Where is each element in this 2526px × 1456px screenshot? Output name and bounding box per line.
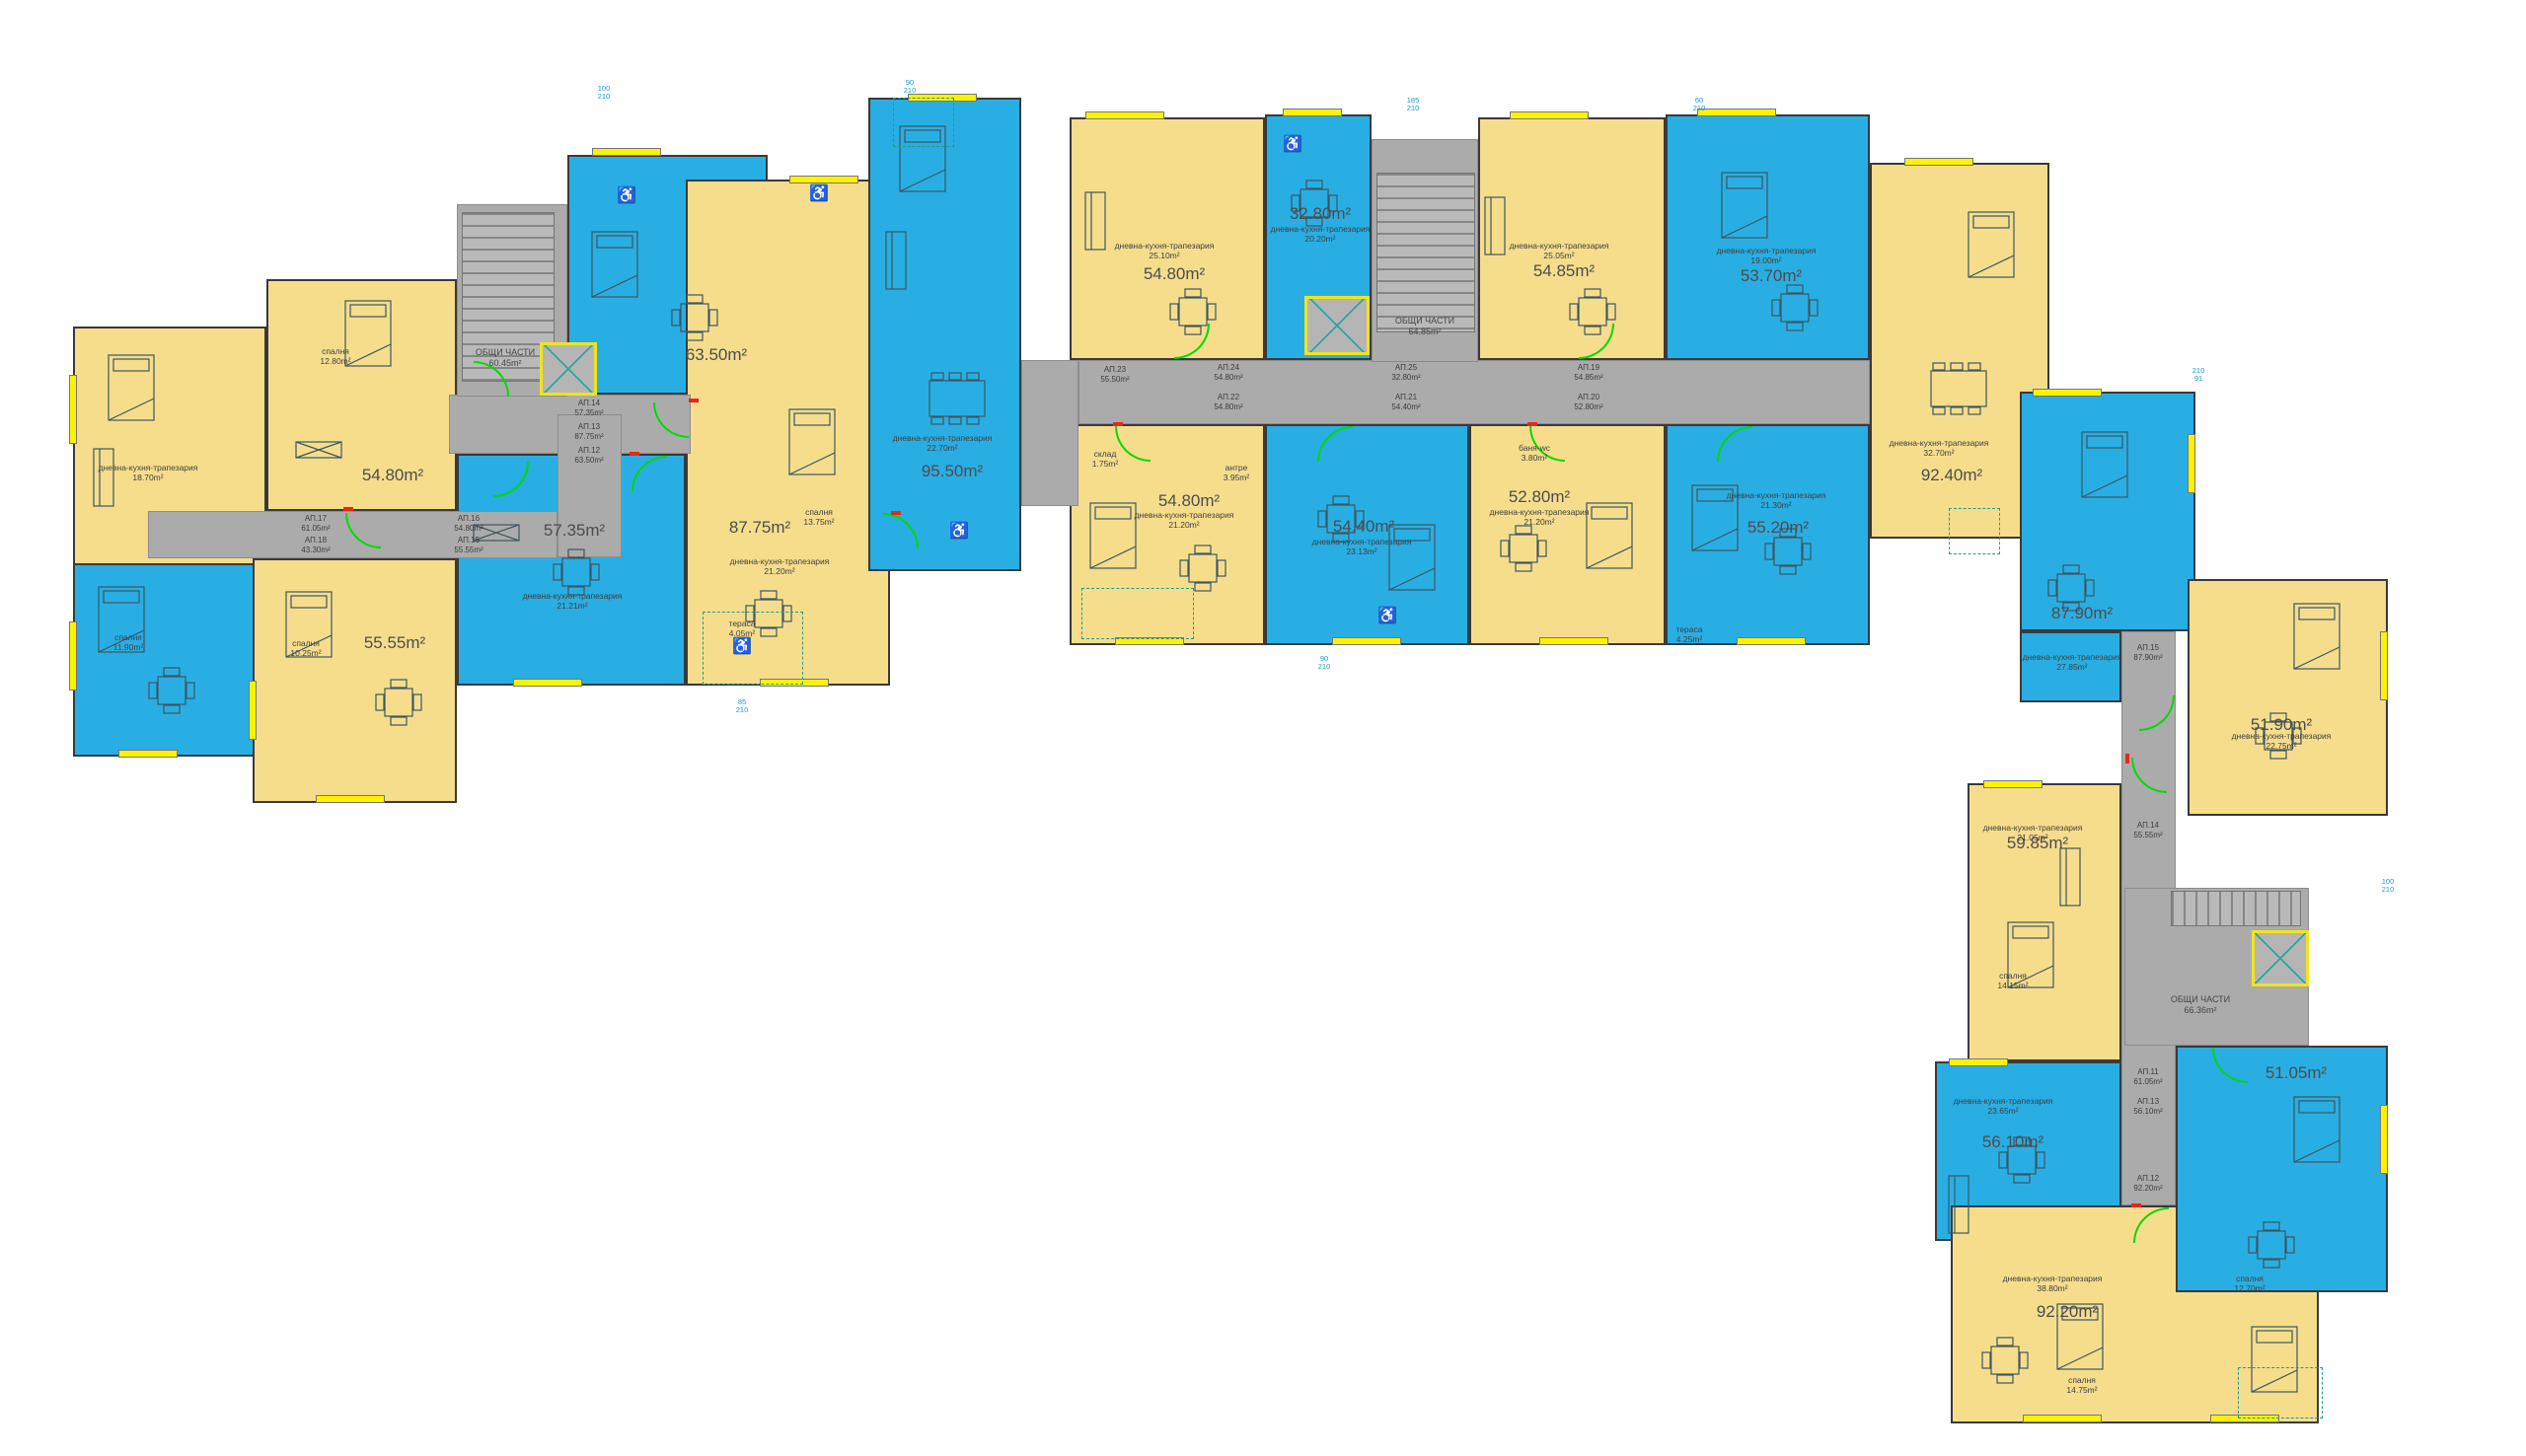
room-label: спалня 10.25m² bbox=[290, 639, 321, 658]
dimension-label: 85 210 bbox=[736, 698, 749, 714]
window-marker bbox=[249, 681, 257, 740]
wheelchair-icon: ♿ bbox=[1377, 606, 1397, 625]
corridor bbox=[1078, 360, 1870, 424]
floor-plan: ♿ ♿ ♿ ♿ ♿ ♿ 54.80m² 55.55m² 63.50m² 57.3… bbox=[0, 0, 2526, 1456]
room-label: дневна-кухня-трапезария 25.05m² bbox=[1510, 242, 1609, 260]
room-label: склад 1.75m² bbox=[1092, 450, 1118, 469]
common-area-name: ОБЩИ ЧАСТИ bbox=[1395, 316, 1454, 326]
dimension-label: 90 210 bbox=[904, 79, 917, 95]
area-label: 95.50m² bbox=[922, 462, 983, 481]
window-marker bbox=[1510, 111, 1589, 119]
area-label: 54.80m² bbox=[1144, 264, 1205, 284]
room-label: баня-wc 3.80m² bbox=[1519, 444, 1550, 463]
door-jamb bbox=[891, 511, 901, 515]
window-marker bbox=[1904, 158, 1973, 166]
window-marker bbox=[69, 375, 77, 444]
stairs-icon bbox=[2171, 891, 2301, 926]
door-jamb bbox=[343, 507, 353, 511]
common-area-name: ОБЩИ ЧАСТИ bbox=[476, 347, 535, 357]
area-label: 54.80m² bbox=[1158, 491, 1220, 511]
room-label: дневна-кухня-трапезария 21.30m² bbox=[1727, 491, 1826, 510]
corridor-label: АП.11 61.05m² bbox=[2133, 1067, 2162, 1086]
common-area-label: ОБЩИ ЧАСТИ 60.45m² bbox=[476, 347, 535, 369]
dimension-label: 210 91 bbox=[2192, 367, 2205, 383]
window-marker bbox=[2033, 389, 2102, 397]
window-marker bbox=[2188, 434, 2195, 493]
window-marker bbox=[1697, 109, 1776, 116]
dimension-label: 185 210 bbox=[1407, 97, 1420, 112]
window-marker bbox=[1283, 109, 1342, 116]
corridor-label: АП.14 57.35m² bbox=[574, 399, 603, 417]
area-label: 92.40m² bbox=[1921, 466, 1982, 485]
area-label: 56.10m² bbox=[1982, 1132, 2043, 1152]
corridor-label: АП.24 54.80m² bbox=[1214, 363, 1242, 382]
room-label: дневна-кухня-трапезария 23.65m² bbox=[1954, 1097, 2053, 1116]
corridor-label: АП.13 87.75m² bbox=[574, 422, 603, 441]
corridor-label: АП.19 54.85m² bbox=[1574, 363, 1602, 382]
room-label: дневна-кухня-трапезария 23.13m² bbox=[1312, 538, 1412, 556]
room-label: дневна-кухня-трапезария 25.10m² bbox=[1115, 242, 1215, 260]
dimension-label: 90 210 bbox=[1318, 655, 1331, 671]
corridor-label: АП.14 55.55m² bbox=[2133, 821, 2162, 839]
room-label: тераса 4.25m² bbox=[1676, 625, 1703, 644]
terrace-outline bbox=[1949, 508, 2000, 554]
room-label: дневна-кухня-трапезария 21.21m² bbox=[523, 592, 623, 611]
window-marker bbox=[1949, 1058, 2008, 1066]
area-label: 54.80m² bbox=[362, 466, 423, 485]
window-marker bbox=[2023, 1415, 2102, 1422]
area-label: 55.20m² bbox=[1747, 518, 1809, 538]
stairs-icon bbox=[1376, 173, 1475, 332]
room-label: дневна-кухня-трапезария 20.20m² bbox=[1271, 225, 1371, 244]
door-jamb bbox=[689, 399, 699, 402]
corridor-label: АП.16 54.80m² bbox=[454, 514, 483, 533]
corridor-label: АП.17 61.05m² bbox=[301, 514, 330, 533]
room-label: дневна-кухня-трапезария 22.70m² bbox=[893, 434, 993, 453]
corridor-label: АП.25 32.80m² bbox=[1391, 363, 1420, 382]
terrace-outline bbox=[1081, 588, 1194, 639]
elevator-icon bbox=[1304, 296, 1370, 355]
elevator-icon bbox=[540, 342, 597, 396]
wheelchair-icon: ♿ bbox=[1283, 134, 1302, 154]
apartment-unit bbox=[686, 180, 890, 686]
wheelchair-icon: ♿ bbox=[617, 185, 636, 205]
wheelchair-icon: ♿ bbox=[949, 521, 969, 541]
room-label: дневна-кухня-трапезария 38.80m² bbox=[2003, 1274, 2103, 1293]
apartment-unit bbox=[2188, 579, 2388, 816]
window-marker bbox=[69, 621, 77, 691]
door-jamb bbox=[1527, 422, 1537, 426]
room-label: дневна-кухня-трапезария 27.85m² bbox=[2023, 653, 2122, 672]
room-label: дневна-кухня-трапезария 19.00m² bbox=[1717, 247, 1817, 265]
apartment-unit bbox=[1469, 424, 1666, 645]
door-jamb bbox=[2125, 754, 2129, 764]
window-marker bbox=[1737, 637, 1806, 645]
room-label: дневна-кухня-трапезария 21.20m² bbox=[730, 557, 830, 576]
apartment-unit bbox=[868, 98, 1021, 571]
apartment-unit bbox=[1666, 114, 1870, 360]
dimension-label: 60 210 bbox=[1693, 97, 1706, 112]
room-label: спалня 12.70m² bbox=[2234, 1274, 2265, 1293]
apartment-unit bbox=[253, 558, 457, 803]
terrace-outline bbox=[2238, 1367, 2323, 1419]
common-area-label: ОБЩИ ЧАСТИ 64.85m² bbox=[1395, 316, 1454, 337]
room-label: спалня 13.75m² bbox=[803, 508, 834, 527]
room-label: тераса 4.05m² bbox=[729, 619, 756, 638]
room-label: дневна-кухня-трапезария 21.05m² bbox=[1983, 824, 2083, 842]
room-label: дневна-кухня-трапезария 21.20m² bbox=[1490, 508, 1590, 527]
window-marker bbox=[1983, 780, 2043, 788]
corridor bbox=[1021, 360, 1078, 506]
corridor-label: АП.15 55.55m² bbox=[454, 536, 483, 554]
apartment-unit bbox=[2020, 392, 2195, 631]
terrace-outline bbox=[893, 98, 954, 147]
window-marker bbox=[513, 679, 582, 687]
apartment-unit bbox=[1478, 117, 1666, 360]
common-area-size: 60.45m² bbox=[488, 358, 521, 368]
dimension-label: 100 210 bbox=[598, 85, 611, 101]
room-label: спалня 14.75m² bbox=[2066, 1376, 2097, 1395]
area-label: 32.80m² bbox=[1290, 204, 1351, 224]
apartment-unit bbox=[1070, 117, 1265, 360]
window-marker bbox=[2380, 631, 2388, 700]
corridor-label: АП.15 87.90m² bbox=[2133, 643, 2162, 662]
room-label: дневна-кухня-трапезария 18.70m² bbox=[99, 464, 198, 482]
room-label: антре 3.95m² bbox=[1224, 464, 1249, 482]
window-marker bbox=[1332, 637, 1401, 645]
door-jamb bbox=[630, 452, 639, 456]
door-jamb bbox=[2131, 1203, 2141, 1207]
room-label: дневна-кухня-трапезария 32.70m² bbox=[1890, 439, 1989, 458]
common-area-size: 66.36m² bbox=[2184, 1005, 2216, 1015]
area-label: 87.75m² bbox=[729, 518, 790, 538]
corridor-label: АП.23 55.50m² bbox=[1100, 365, 1129, 384]
area-label: 54.85m² bbox=[1533, 261, 1595, 281]
common-area-label: ОБЩИ ЧАСТИ 66.36m² bbox=[2171, 994, 2230, 1016]
corridor-label: АП.21 54.40m² bbox=[1391, 393, 1420, 411]
elevator-icon bbox=[2252, 930, 2309, 986]
window-marker bbox=[316, 795, 385, 803]
area-label: 51.05m² bbox=[2266, 1063, 2327, 1083]
wheelchair-icon: ♿ bbox=[732, 636, 752, 656]
corridor-label: АП.20 52.80m² bbox=[1574, 393, 1602, 411]
corridor-label: АП.22 54.80m² bbox=[1214, 393, 1242, 411]
room-label: дневна-кухня-трапезария 22.75m² bbox=[2232, 732, 2332, 751]
dimension-label: 100 210 bbox=[2382, 878, 2395, 894]
window-marker bbox=[1539, 637, 1608, 645]
door-jamb bbox=[1113, 422, 1123, 426]
area-label: 63.50m² bbox=[686, 345, 747, 365]
window-marker bbox=[592, 148, 661, 156]
common-area-name: ОБЩИ ЧАСТИ bbox=[2171, 994, 2230, 1004]
corridor-label: АП.13 56.10m² bbox=[2133, 1097, 2162, 1116]
area-label: 54.40m² bbox=[1333, 517, 1394, 537]
room-label: дневна-кухня-трапезария 21.20m² bbox=[1135, 511, 1234, 530]
corridor-label: АП.12 92.20m² bbox=[2133, 1174, 2162, 1193]
room-label: спалня 11.90m² bbox=[113, 633, 144, 652]
area-label: 52.80m² bbox=[1509, 487, 1570, 507]
wheelchair-icon: ♿ bbox=[809, 183, 829, 203]
area-label: 53.70m² bbox=[1741, 266, 1802, 286]
window-marker bbox=[2380, 1105, 2388, 1174]
apartment-unit bbox=[73, 563, 262, 757]
window-marker bbox=[1085, 111, 1164, 119]
window-marker bbox=[118, 750, 178, 758]
corridor-label: АП.18 43.30m² bbox=[301, 536, 330, 554]
area-label: 92.20m² bbox=[2037, 1302, 2098, 1322]
area-label: 55.55m² bbox=[364, 633, 425, 653]
room-label: спалня 14.15m² bbox=[1997, 972, 2028, 990]
corridor-label: АП.12 63.50m² bbox=[574, 446, 603, 465]
area-label: 57.35m² bbox=[544, 521, 605, 541]
window-marker bbox=[789, 176, 858, 183]
room-label: спалня 12.80m² bbox=[320, 347, 350, 366]
common-area-size: 64.85m² bbox=[1408, 327, 1441, 336]
area-label: 87.90m² bbox=[2051, 604, 2113, 623]
